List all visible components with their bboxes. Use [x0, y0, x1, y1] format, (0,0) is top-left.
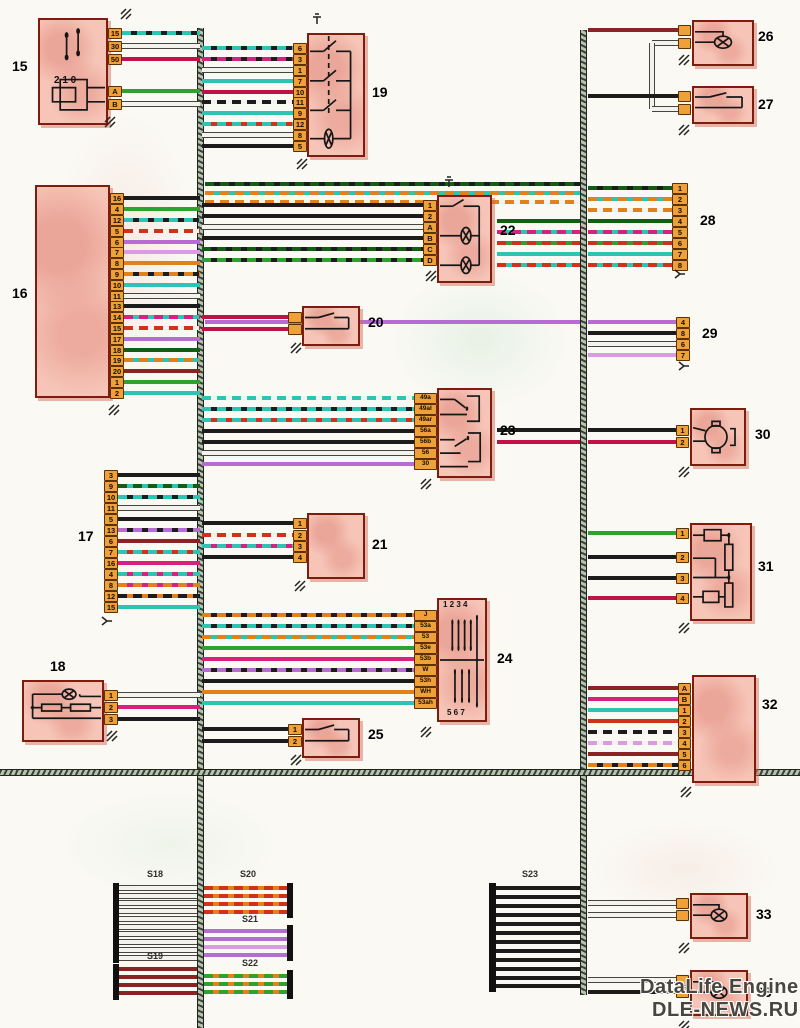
- connector-wire: [118, 484, 200, 488]
- component-number: 28: [700, 212, 716, 228]
- ground-icon: [673, 268, 685, 280]
- ground-icon: [296, 158, 308, 170]
- splice-bar: [287, 970, 293, 999]
- connector-wire: [118, 473, 200, 477]
- pin-label: 11: [104, 503, 118, 514]
- ground-icon: [290, 342, 302, 354]
- connector-wire: [118, 717, 200, 721]
- connector-wire: [202, 396, 414, 400]
- splice-wire: [204, 886, 287, 890]
- pin-label: 1: [672, 183, 688, 194]
- connector-wire: [202, 544, 293, 548]
- splice-label: S22: [242, 958, 258, 968]
- component-inner-text: 1 2 3 4: [443, 601, 467, 609]
- connector-wire: [118, 692, 200, 698]
- pin-label: B: [423, 233, 437, 244]
- splice-bar: [489, 883, 496, 992]
- pin-label: 1: [104, 690, 118, 701]
- splice-wire: [496, 940, 580, 944]
- wiring-trunk: [580, 30, 587, 995]
- connector-wire: [202, 739, 288, 743]
- splice-label: S23: [522, 869, 538, 879]
- connector-wire: [118, 572, 200, 576]
- connector-wire: [588, 697, 678, 701]
- pin-label: 30: [414, 459, 437, 470]
- pin-label: 49ar: [414, 415, 437, 426]
- connector-wire: [202, 668, 414, 672]
- pin-label: 4: [678, 738, 691, 749]
- splice-wire: [204, 953, 287, 957]
- watermark-line2: DLE-NEWS.RU: [652, 999, 799, 1022]
- connector-wire: [124, 304, 200, 308]
- pin-label: 7: [110, 247, 124, 258]
- pin-label: WH: [414, 687, 437, 698]
- ground-icon: [678, 54, 690, 66]
- ground-icon: [425, 270, 437, 282]
- pin-label: [288, 324, 302, 335]
- pin-label: 8: [110, 258, 124, 269]
- pin-label: [678, 25, 691, 36]
- pin-label: 1: [678, 705, 691, 716]
- component-number: 29: [702, 325, 718, 341]
- connector-wire: [588, 912, 676, 918]
- connector-wire: [588, 708, 678, 712]
- component-number: 24: [497, 650, 513, 666]
- ground-icon: [294, 580, 306, 592]
- pin-label: 1: [676, 528, 689, 539]
- connector-wire: [202, 100, 293, 104]
- splice-wire: [496, 931, 580, 935]
- connector-wire: [202, 144, 293, 148]
- connector-wire: [124, 240, 200, 244]
- connector-wire: [118, 517, 200, 521]
- connector-wire: [588, 576, 676, 580]
- wire: [497, 440, 580, 444]
- connector-wire: [202, 67, 293, 73]
- wire: [497, 252, 580, 256]
- connector-wire: [118, 594, 200, 598]
- component-symbol: [440, 198, 489, 280]
- connector-wire: [202, 555, 293, 559]
- connector-wire: [202, 690, 414, 694]
- ground-icon: [680, 786, 692, 798]
- pin-label: 4: [110, 204, 124, 215]
- pin-label: 5: [110, 226, 124, 237]
- connector-wire: [588, 730, 678, 734]
- pin-label: 2: [672, 194, 688, 205]
- connector-wire: [124, 218, 200, 222]
- pin-label: 49al: [414, 404, 437, 415]
- connector-wire: [202, 57, 293, 61]
- splice-bar: [113, 964, 119, 1000]
- background-blotch: [60, 790, 280, 900]
- pin-label: 16: [104, 558, 118, 569]
- pin-label: 4: [293, 552, 307, 563]
- pin-label: J: [414, 610, 437, 621]
- ground-icon: [104, 116, 116, 128]
- splice-wire: [204, 945, 287, 949]
- splice-wire: [496, 984, 580, 988]
- component-symbol: [695, 89, 751, 121]
- connector-wire: [202, 646, 414, 650]
- pin-label: 56b: [414, 437, 437, 448]
- splice-wire: [119, 975, 197, 979]
- splice-wire: [119, 939, 197, 945]
- component-number: 21: [372, 536, 388, 552]
- pin-label: 5: [678, 749, 691, 760]
- splice-wire: [496, 904, 580, 908]
- pin-label: [678, 91, 691, 102]
- pin-label: 3: [104, 470, 118, 481]
- connector-wire: [202, 429, 414, 433]
- splice-wire: [204, 982, 287, 986]
- component-number: 15: [12, 58, 28, 74]
- component-symbol: [440, 601, 484, 719]
- connector-wire: [202, 214, 423, 218]
- connector-wire: [124, 272, 200, 276]
- component-symbol: [693, 896, 745, 936]
- connector-wire: [649, 43, 655, 109]
- connector-wire: [118, 539, 200, 543]
- pin-label: C: [423, 244, 437, 255]
- pin-label: 15: [104, 602, 118, 613]
- component-number: 22: [500, 222, 516, 238]
- connector-wire: [124, 380, 200, 384]
- pin-label: 2: [293, 530, 307, 541]
- connector-wire: [118, 605, 200, 609]
- pin-label: 9: [110, 269, 124, 280]
- component-number: 18: [50, 658, 66, 674]
- connector-wire: [588, 341, 676, 347]
- connector-wire: [122, 101, 200, 107]
- pin-label: 7: [104, 547, 118, 558]
- component-number: 23: [500, 422, 516, 438]
- connector-wire: [118, 583, 200, 587]
- connector-wire: [588, 752, 678, 756]
- connector-wire: [118, 495, 200, 499]
- connector-wire: [124, 283, 200, 287]
- pin-label: 2: [676, 552, 689, 563]
- pin-label: 13: [104, 525, 118, 536]
- pin-label: 5: [672, 227, 688, 238]
- ground-icon: [678, 466, 690, 478]
- splice-wire: [119, 924, 197, 930]
- pin-label: B: [108, 99, 122, 110]
- pin-label: [678, 104, 691, 115]
- connector-wire: [122, 43, 200, 49]
- connector-wire: [124, 369, 200, 373]
- ground-icon: [106, 730, 118, 742]
- component-symbol: [305, 309, 357, 343]
- splice-wire: [204, 937, 287, 941]
- connector-wire: [202, 521, 293, 525]
- ground-icon: [420, 726, 432, 738]
- pin-label: A: [108, 86, 122, 97]
- connector-wire: [202, 122, 293, 126]
- connector-wire: [118, 505, 200, 511]
- pin-label: 1: [293, 518, 307, 529]
- ground-icon: [677, 360, 689, 372]
- pin-label: 4: [104, 569, 118, 580]
- pin-label: 53a: [414, 621, 437, 632]
- pin-label: 15: [110, 323, 124, 334]
- splice-wire: [204, 929, 287, 933]
- connector-wire: [124, 207, 200, 211]
- component-symbol: [305, 721, 357, 755]
- connector-wire: [202, 613, 414, 617]
- splice-wire: [119, 967, 197, 971]
- pin-label: 1: [293, 65, 307, 76]
- connector-wire: [118, 561, 200, 565]
- pin-label: 2: [104, 702, 118, 713]
- splice-bar: [113, 883, 119, 963]
- component-symbol: [25, 683, 101, 739]
- pin-label: 2: [423, 211, 437, 222]
- connector-wire: [124, 358, 200, 362]
- connector-wire: [588, 763, 678, 767]
- wire: [205, 320, 580, 324]
- connector-wire: [588, 219, 672, 223]
- pin-label: 7: [672, 249, 688, 260]
- wiring-diagram: S18S19S20S21S22S232 1 0153050AB156317101…: [0, 0, 800, 1028]
- connector-wire: [202, 258, 423, 262]
- splice-wire: [119, 991, 197, 995]
- pin-label: 50: [108, 54, 122, 65]
- pin-label: 53: [414, 632, 437, 643]
- pin-label: 3: [104, 714, 118, 725]
- connector-wire: [588, 331, 676, 335]
- component-number: 33: [756, 906, 772, 922]
- connector-wire: [118, 528, 200, 532]
- connector-wire: [588, 555, 676, 559]
- pin-label: 56: [414, 448, 437, 459]
- splice-wire: [119, 916, 197, 922]
- splice-wire: [496, 895, 580, 899]
- pin-label: 8: [676, 328, 690, 339]
- component-number: 26: [758, 28, 774, 44]
- pin-label: 4: [676, 593, 689, 604]
- pin-label: 2: [110, 388, 124, 399]
- connector-wire: [122, 31, 200, 35]
- connector-wire: [202, 315, 288, 319]
- component-inner-text: 2 1 0: [54, 76, 76, 86]
- ground-icon: [290, 754, 302, 766]
- pin-label: 1: [288, 724, 302, 735]
- component-symbol: [41, 21, 105, 122]
- connector-wire: [202, 701, 414, 705]
- pin-label: 3: [676, 573, 689, 584]
- splice-wire: [204, 990, 287, 994]
- component-number: 19: [372, 84, 388, 100]
- connector-wire: [652, 40, 678, 46]
- pin-label: [678, 38, 691, 49]
- connector-wire: [588, 252, 672, 256]
- connector-wire: [124, 326, 200, 330]
- component-symbol: [693, 526, 749, 618]
- component-number: 25: [368, 726, 384, 742]
- pin-label: 15: [108, 28, 122, 39]
- splice-wire: [119, 908, 197, 914]
- pin-label: [676, 898, 689, 909]
- connector-wire: [124, 315, 200, 319]
- splice-wire: [496, 922, 580, 926]
- pin-label: 19: [110, 355, 124, 366]
- connector-wire: [202, 79, 293, 83]
- splice-wire: [496, 913, 580, 917]
- connector-wire: [124, 348, 200, 352]
- pin-label: 1: [423, 200, 437, 211]
- ground-icon: [311, 12, 323, 24]
- pin-label: 53ah: [414, 698, 437, 709]
- pin-label: [288, 312, 302, 323]
- splice-wire: [496, 886, 580, 890]
- pin-label: 56a: [414, 426, 437, 437]
- wire: [497, 241, 580, 245]
- ground-icon: [443, 175, 455, 187]
- pin-label: 2: [288, 736, 302, 747]
- pin-label: 8: [104, 580, 118, 591]
- connector-wire: [122, 57, 200, 61]
- ground-icon: [678, 124, 690, 136]
- pin-label: 1: [110, 377, 124, 388]
- splice-wire: [204, 894, 287, 898]
- pin-label: 3: [293, 54, 307, 65]
- connector-wire: [588, 900, 676, 906]
- component-number: 16: [12, 285, 28, 301]
- connector-wire: [202, 462, 414, 466]
- ground-icon: [108, 404, 120, 416]
- connector-wire: [124, 337, 200, 341]
- watermark-line1: DataLife Engine: [640, 976, 799, 999]
- connector-wire: [202, 46, 293, 50]
- pin-label: 6: [672, 238, 688, 249]
- pin-label: 4: [676, 317, 690, 328]
- pin-label: 8: [293, 130, 307, 141]
- pin-label: 6: [678, 760, 691, 771]
- connector-wire: [202, 440, 414, 444]
- wire: [205, 191, 580, 195]
- connector-wire: [202, 450, 414, 456]
- connector-wire: [202, 132, 293, 138]
- pin-label: 3: [678, 727, 691, 738]
- connector-wire: [202, 327, 288, 331]
- connector-wire: [124, 229, 200, 233]
- connector-wire: [588, 531, 676, 535]
- pin-label: 5: [293, 141, 307, 152]
- connector-wire: [202, 247, 423, 251]
- ground-icon: [678, 942, 690, 954]
- splice-wire: [119, 931, 197, 937]
- splice-wire: [496, 976, 580, 980]
- component-number: 30: [755, 426, 771, 442]
- component-box: [35, 185, 110, 398]
- connector-wire: [124, 261, 200, 265]
- ground-icon: [120, 8, 132, 20]
- splice-label: S19: [147, 951, 163, 961]
- connector-wire: [202, 407, 414, 411]
- pin-label: [676, 910, 689, 921]
- connector-wire: [124, 250, 200, 254]
- component-number: 17: [78, 528, 94, 544]
- connector-wire: [588, 186, 672, 190]
- pin-label: 6: [676, 339, 690, 350]
- connector-wire: [588, 208, 672, 212]
- pin-label: 2: [676, 437, 689, 448]
- connector-wire: [202, 418, 414, 422]
- pin-label: 49a: [414, 393, 437, 404]
- pin-label: A: [678, 683, 691, 694]
- component-number: 20: [368, 314, 384, 330]
- connector-wire: [588, 230, 672, 234]
- connector-wire: [124, 196, 200, 200]
- pin-label: 6: [104, 536, 118, 547]
- connector-wire: [122, 89, 200, 93]
- pin-label: 3: [293, 541, 307, 552]
- pin-label: 12: [104, 591, 118, 602]
- pin-label: 53b: [414, 654, 437, 665]
- connector-wire: [588, 263, 672, 267]
- splice-wire: [204, 902, 287, 906]
- pin-label: 3: [672, 205, 688, 216]
- connector-wire: [588, 28, 678, 32]
- splice-bar: [287, 925, 293, 961]
- splice-wire: [496, 949, 580, 953]
- pin-label: 9: [104, 481, 118, 492]
- connector-wire: [202, 203, 423, 207]
- connector-wire: [202, 727, 288, 731]
- pin-label: 7: [293, 76, 307, 87]
- pin-label: 4: [672, 216, 688, 227]
- connector-wire: [588, 719, 678, 723]
- connector-wire: [588, 197, 672, 201]
- connector-wire: [202, 90, 293, 94]
- connector-wire: [588, 741, 678, 745]
- splice-bar: [287, 883, 293, 918]
- pin-label: 10: [110, 280, 124, 291]
- splice-wire: [119, 885, 197, 891]
- connector-wire: [202, 236, 423, 240]
- pin-label: 53h: [414, 676, 437, 687]
- component-symbol: [695, 23, 751, 63]
- splice-wire: [496, 958, 580, 962]
- connector-wire: [588, 686, 678, 690]
- connector-wire: [118, 550, 200, 554]
- pin-label: 14: [110, 312, 124, 323]
- component-symbol: [310, 36, 362, 154]
- splice-wire: [119, 900, 197, 906]
- pin-label: B: [678, 694, 691, 705]
- pin-label: 30: [108, 41, 122, 52]
- connector-wire: [202, 657, 414, 661]
- wire: [205, 182, 580, 186]
- pin-label: 2: [678, 716, 691, 727]
- connector-wire: [202, 679, 414, 683]
- pin-label: 1: [676, 425, 689, 436]
- splice-wire: [119, 893, 197, 899]
- connector-wire: [202, 533, 293, 537]
- splice-wire: [204, 974, 287, 978]
- connector-wire: [588, 320, 676, 324]
- pin-label: 13: [110, 301, 124, 312]
- pin-label: 53e: [414, 643, 437, 654]
- pin-label: 5: [104, 514, 118, 525]
- ground-icon: [678, 622, 690, 634]
- pin-label: 10: [104, 492, 118, 503]
- connector-wire: [588, 241, 672, 245]
- connector-wire: [652, 106, 678, 112]
- pin-label: 12: [110, 215, 124, 226]
- splice-wire: [496, 967, 580, 971]
